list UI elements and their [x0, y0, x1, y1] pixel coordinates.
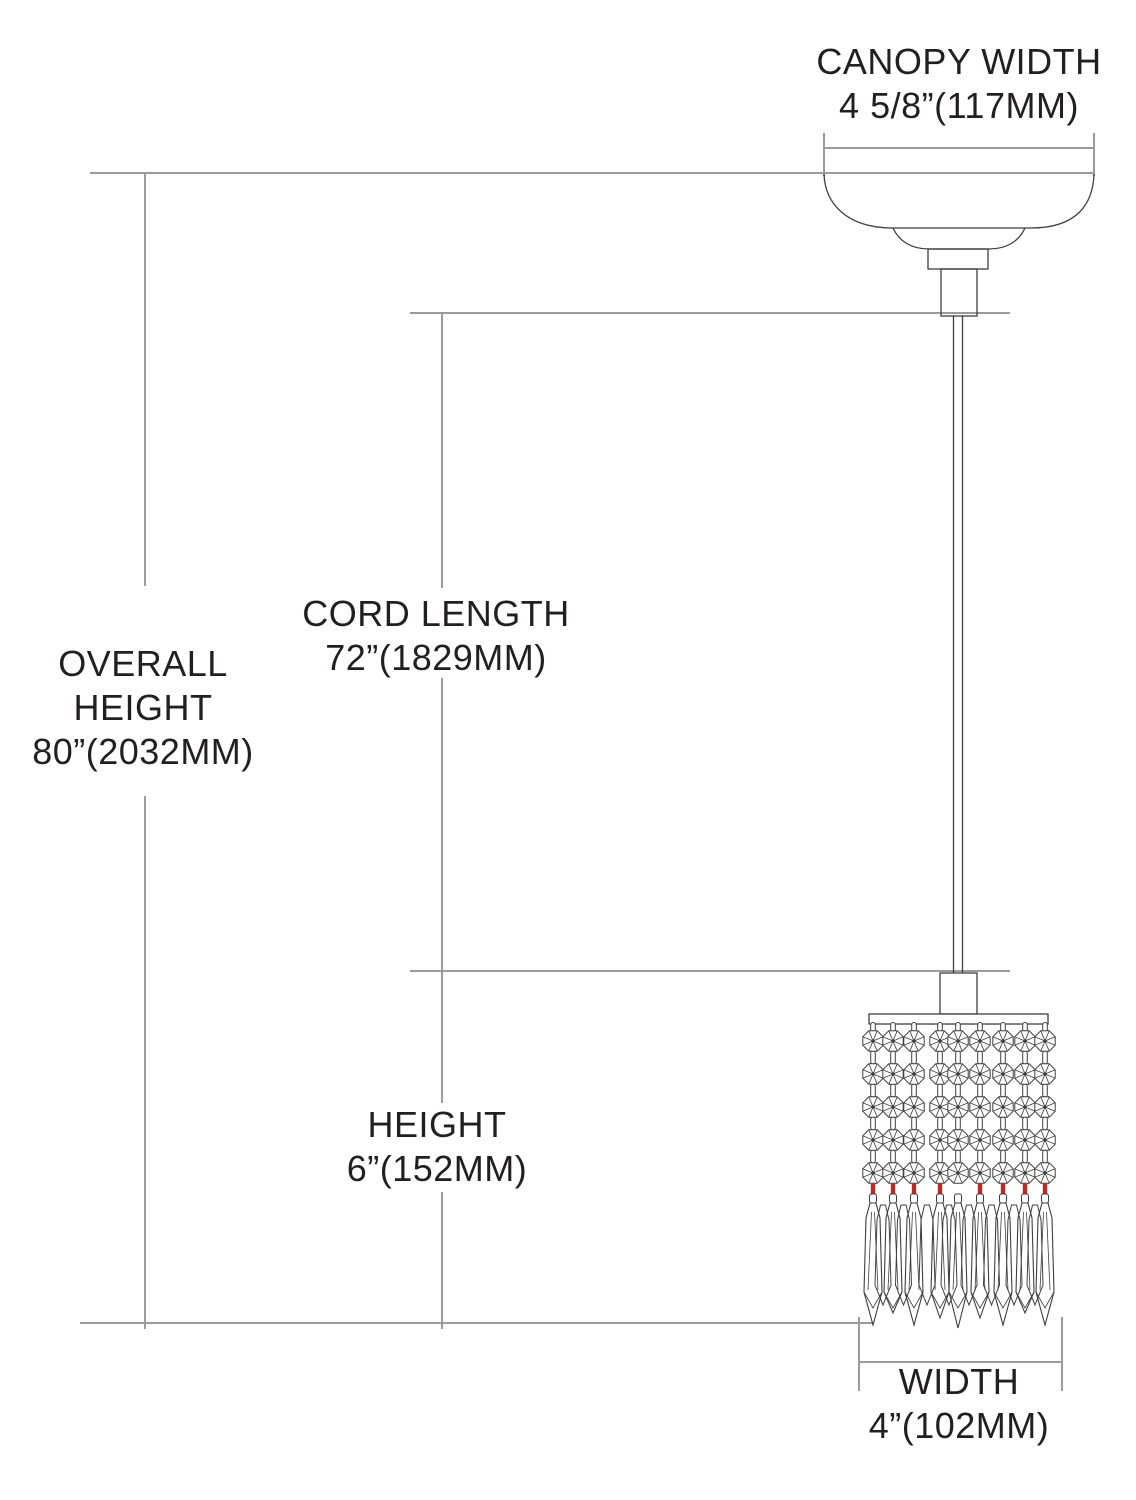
canopy	[824, 174, 1094, 316]
width-label: WIDTH 4”(102MM)	[869, 1360, 1050, 1448]
width-value: 4”(102MM)	[869, 1404, 1050, 1448]
cord	[954, 316, 963, 973]
socket-block	[940, 973, 977, 1014]
height-title: HEIGHT	[347, 1103, 528, 1147]
prism-drops	[864, 1183, 1054, 1328]
overall-height-title-2: HEIGHT	[32, 686, 254, 730]
canopy-width-value: 4 5/8”(117MM)	[816, 84, 1101, 128]
crystal-pendant	[863, 973, 1055, 1328]
canopy-width-label: CANOPY WIDTH 4 5/8”(117MM)	[816, 40, 1101, 128]
overall-height-label: OVERALL HEIGHT 80”(2032MM)	[32, 642, 254, 774]
overall-height-title-1: OVERALL	[32, 642, 254, 686]
cord-length-label: CORD LENGTH 72”(1829MM)	[302, 592, 570, 680]
crystal-grid	[863, 1023, 1055, 1184]
canopy-width-title: CANOPY WIDTH	[816, 40, 1101, 84]
dimension-diagram: CANOPY WIDTH 4 5/8”(117MM) OVERALL HEIGH…	[0, 0, 1136, 1500]
height-label: HEIGHT 6”(152MM)	[347, 1103, 528, 1191]
cord-length-title: CORD LENGTH	[302, 592, 570, 636]
width-title: WIDTH	[869, 1360, 1050, 1404]
height-value: 6”(152MM)	[347, 1147, 528, 1191]
overall-height-value: 80”(2032MM)	[32, 730, 254, 774]
cord-length-value: 72”(1829MM)	[302, 636, 570, 680]
